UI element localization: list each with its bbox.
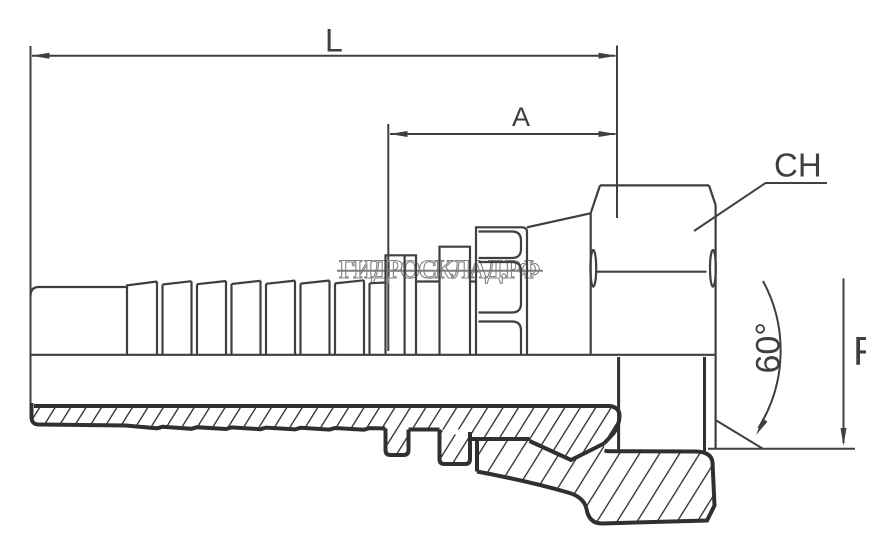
svg-text:60°: 60° xyxy=(750,322,788,373)
svg-text:L: L xyxy=(325,23,343,59)
svg-text:A: A xyxy=(512,102,530,132)
svg-text:CH: CH xyxy=(774,147,822,184)
